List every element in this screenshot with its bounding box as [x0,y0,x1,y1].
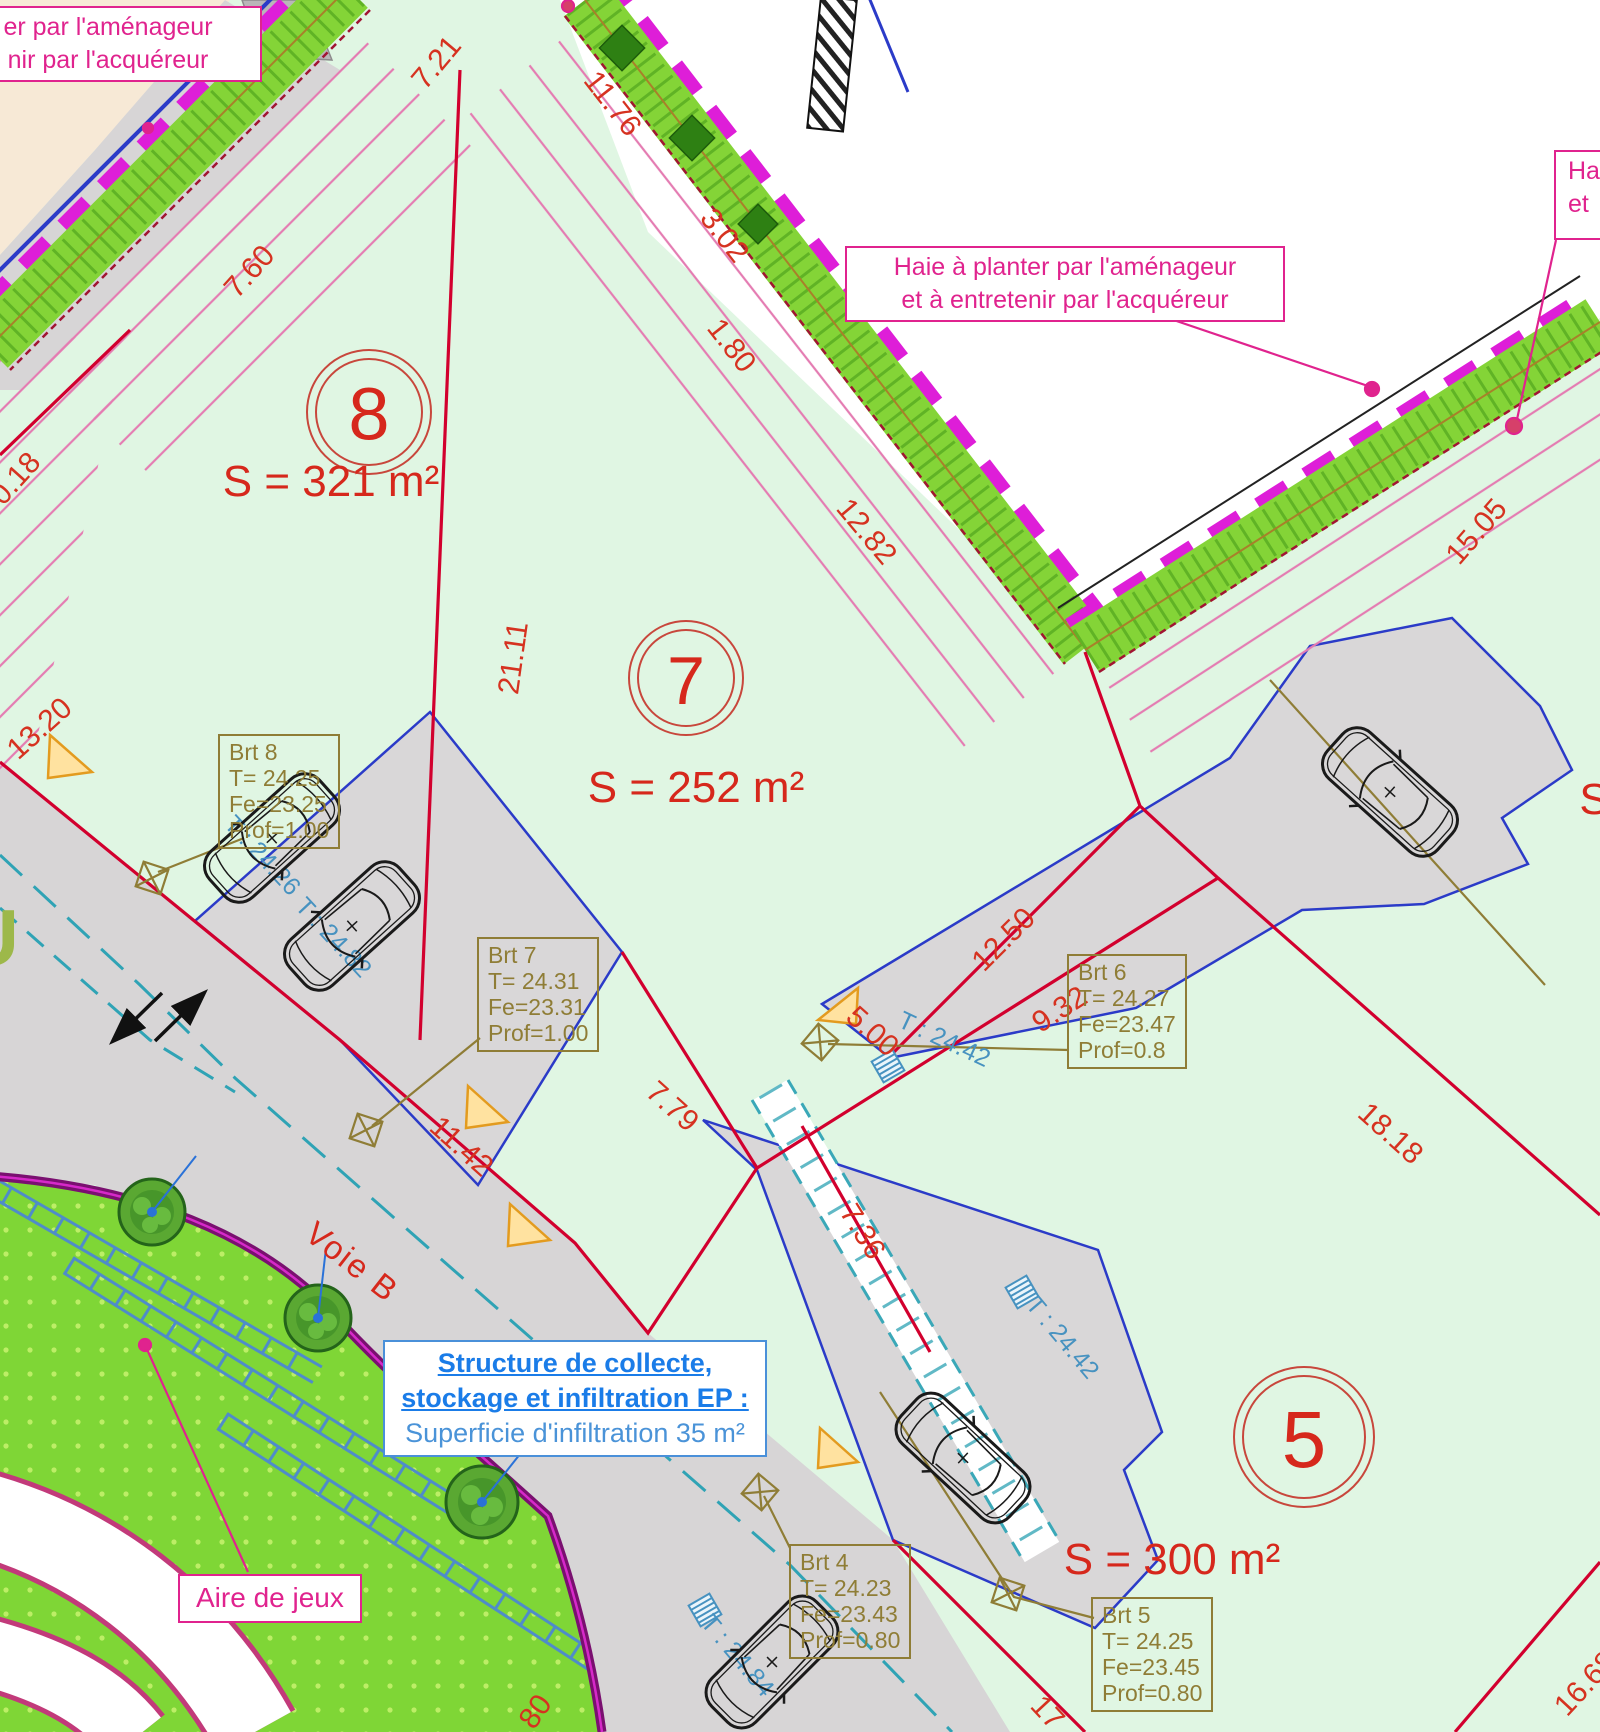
car-icon [192,760,353,916]
subdivision-plan: T : 24.26 T : 24.82 T : 24.84 7.21 11.76… [0,0,1600,1732]
car-icon [883,1380,1043,1537]
car-icon [272,848,433,1004]
parked-cars-layer [0,0,1600,1732]
car-icon [693,1583,851,1732]
car-icon [1310,714,1471,870]
